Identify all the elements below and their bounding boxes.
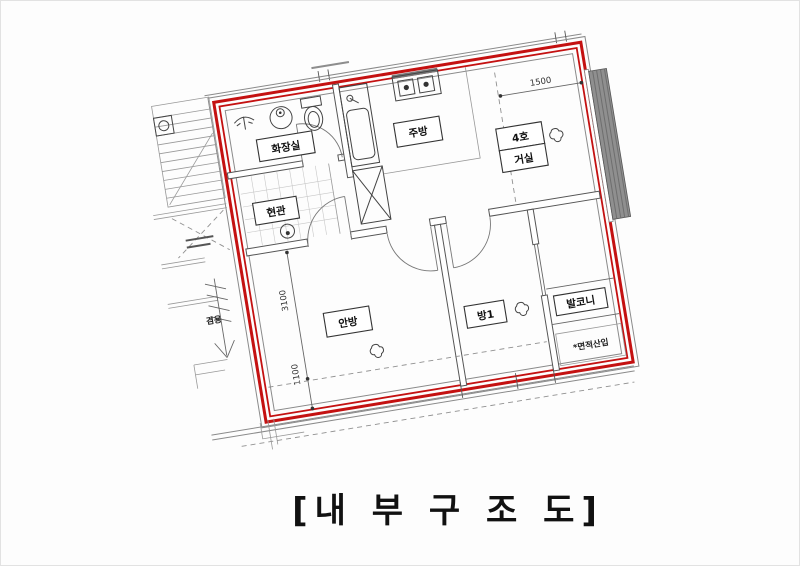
room1: 방1 <box>464 296 530 328</box>
master-bedroom: 안방 3100 1100 <box>272 238 391 413</box>
dimension-1500: 1500 <box>497 71 584 98</box>
svg-text:1500: 1500 <box>529 76 552 89</box>
x-marked-unit <box>353 166 391 224</box>
washing-machine-icon <box>268 105 293 130</box>
floor-plan-page: 화장실 현관 <box>0 0 800 566</box>
ceiling-light-swirl <box>369 343 384 358</box>
small-annotation-mark <box>186 236 214 241</box>
floor-plan: 화장실 현관 <box>134 21 659 462</box>
zone-dashed-line <box>268 342 546 388</box>
exterior-top-lines <box>203 24 582 101</box>
room-label-room1: 방1 <box>476 307 495 323</box>
hall-door-arc <box>301 196 352 247</box>
kitchen-area: 주방 <box>338 63 487 224</box>
washbasin-icon <box>234 115 256 131</box>
drawing-caption: [내 부 구 조 도] <box>97 483 799 532</box>
toilet-icon <box>300 96 325 132</box>
master-door-arc <box>387 227 438 278</box>
unit-number-label: 4호 <box>511 129 530 145</box>
ceiling-light-swirl <box>549 127 564 142</box>
svg-text:3100: 3100 <box>278 289 291 312</box>
living-room: 1500 4호 거실 <box>487 59 601 206</box>
red-unit-boundary <box>208 36 639 427</box>
shared-use-label: 겸용 <box>205 314 222 327</box>
ceiling-light-swirl <box>514 301 529 316</box>
room1-door-arc <box>446 217 497 268</box>
entrance-room: 현관 <box>238 164 340 249</box>
floor-plan-drawing: 화장실 현관 <box>1 1 800 566</box>
area-note-text: *면적산입 <box>572 337 609 354</box>
dimension-3100-1100: 3100 1100 <box>272 250 315 412</box>
middle-wall <box>240 156 608 301</box>
